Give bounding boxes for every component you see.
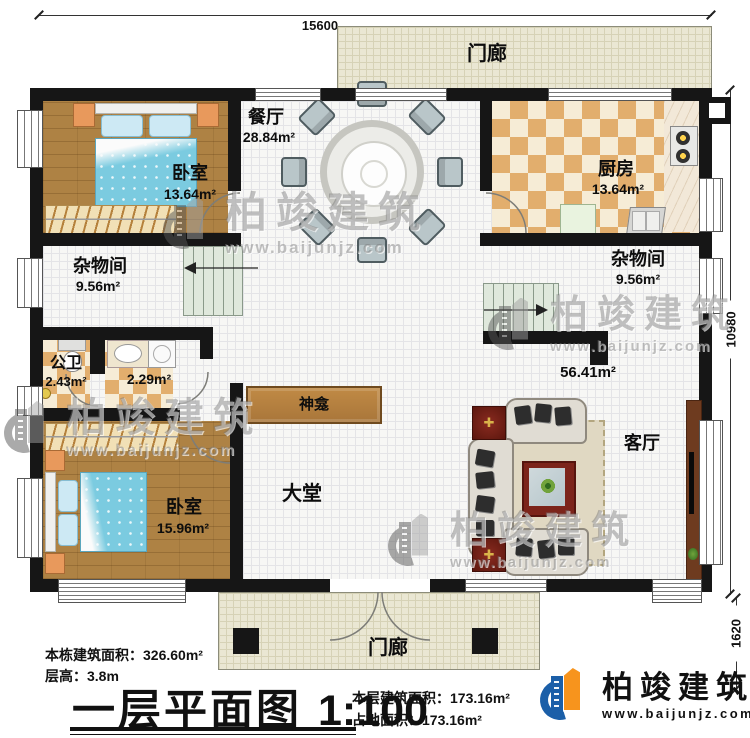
brand-url: www.baijunjz.com [602, 706, 750, 721]
storage-left-label: 杂物间 [52, 257, 148, 276]
living-label: 客厅 [608, 434, 676, 453]
storage-right-area: 9.56m² [598, 271, 678, 287]
bathroom-label: 公卫 [42, 356, 90, 373]
dining-label: 餐厅 [234, 108, 298, 127]
floor-area-value: 173.16m² [450, 690, 510, 706]
door-swing-overlay [0, 0, 750, 738]
kitchen-label: 厨房 [584, 160, 648, 179]
bedroom2-area: 15.96m² [140, 520, 226, 536]
storage-right-label: 杂物间 [590, 250, 686, 269]
footprint-label: 占地面积： [352, 712, 422, 728]
floor-plan-page: 15600 10980 1620 门廊 门廊 [0, 0, 750, 738]
storage-left-area: 9.56m² [58, 278, 138, 294]
brand-lockup: 柏竣建筑 www.baijunjz.com [540, 668, 750, 724]
floor-area-line: 本层建筑面积：173.16m² [352, 688, 510, 708]
kitchen-area: 13.64m² [582, 181, 654, 197]
floor-area-label: 本层建筑面积： [352, 690, 450, 706]
building-area-line: 本栋建筑面积：326.60m² [45, 645, 203, 665]
bedroom1-area: 13.64m² [150, 186, 230, 202]
footprint-value: 173.16m² [422, 712, 482, 728]
building-area-label: 本栋建筑面积： [45, 647, 143, 663]
building-area-value: 326.60m² [143, 647, 203, 663]
footprint-line: 占地面积：173.16m² [352, 710, 482, 730]
living-area: 56.41m² [548, 364, 628, 381]
bathroom-area: 2.43m² [36, 374, 96, 389]
bedroom1-label: 卧室 [152, 164, 228, 183]
dining-area: 28.84m² [228, 129, 310, 145]
brand-logo-icon [540, 668, 592, 724]
bedroom2-label: 卧室 [146, 498, 222, 517]
hall-label: 大堂 [266, 484, 338, 505]
plan-title-underline [70, 727, 356, 735]
brand-name: 柏竣建筑 [602, 672, 750, 703]
washroom-area: 2.29m² [118, 371, 180, 387]
